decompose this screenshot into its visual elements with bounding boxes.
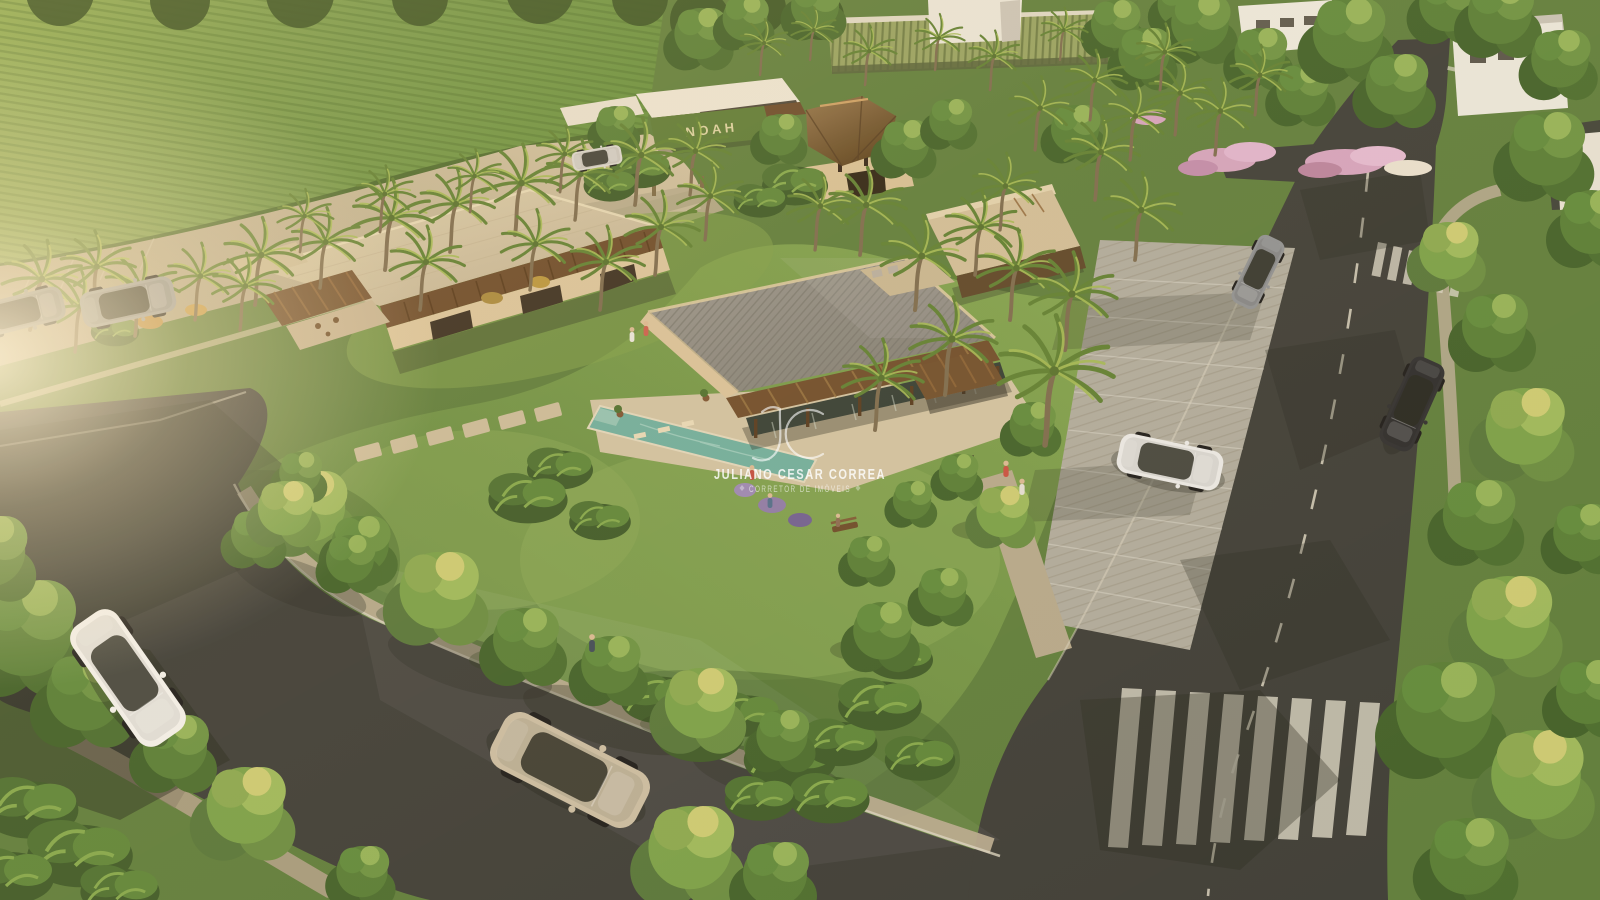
watermark-name: JULIANO CESAR CORREA [714, 467, 886, 483]
warm-tint [0, 0, 1600, 900]
aerial-render-of-gated-community: NOAH [0, 0, 1600, 900]
watermark-title: CORRETOR DE IMÓVEIS [749, 484, 851, 494]
